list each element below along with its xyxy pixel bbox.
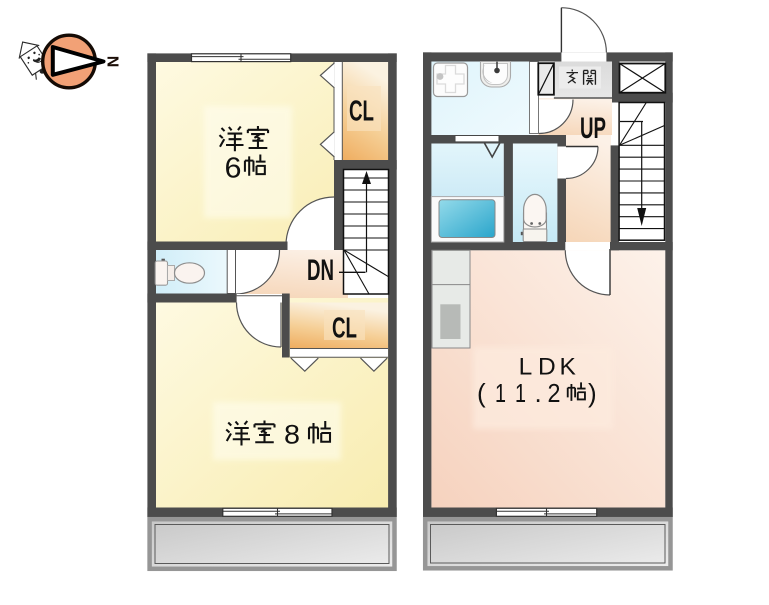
svg-text:D: D — [538, 354, 556, 381]
svg-text:1: 1 — [495, 378, 506, 408]
svg-text:8: 8 — [284, 420, 300, 450]
svg-text:CL: CL — [349, 96, 374, 128]
svg-text:DN: DN — [307, 254, 334, 287]
svg-text:L: L — [519, 354, 533, 381]
svg-text:(: ( — [477, 378, 486, 408]
svg-text:1: 1 — [515, 378, 526, 408]
svg-text:UP: UP — [580, 112, 606, 145]
svg-text:): ) — [588, 378, 597, 408]
svg-text:6: 6 — [225, 153, 242, 185]
svg-text:CL: CL — [332, 313, 357, 345]
svg-text:.: . — [535, 378, 542, 408]
svg-text:2: 2 — [548, 378, 561, 408]
svg-text:N: N — [104, 56, 121, 68]
svg-text:K: K — [560, 354, 577, 381]
